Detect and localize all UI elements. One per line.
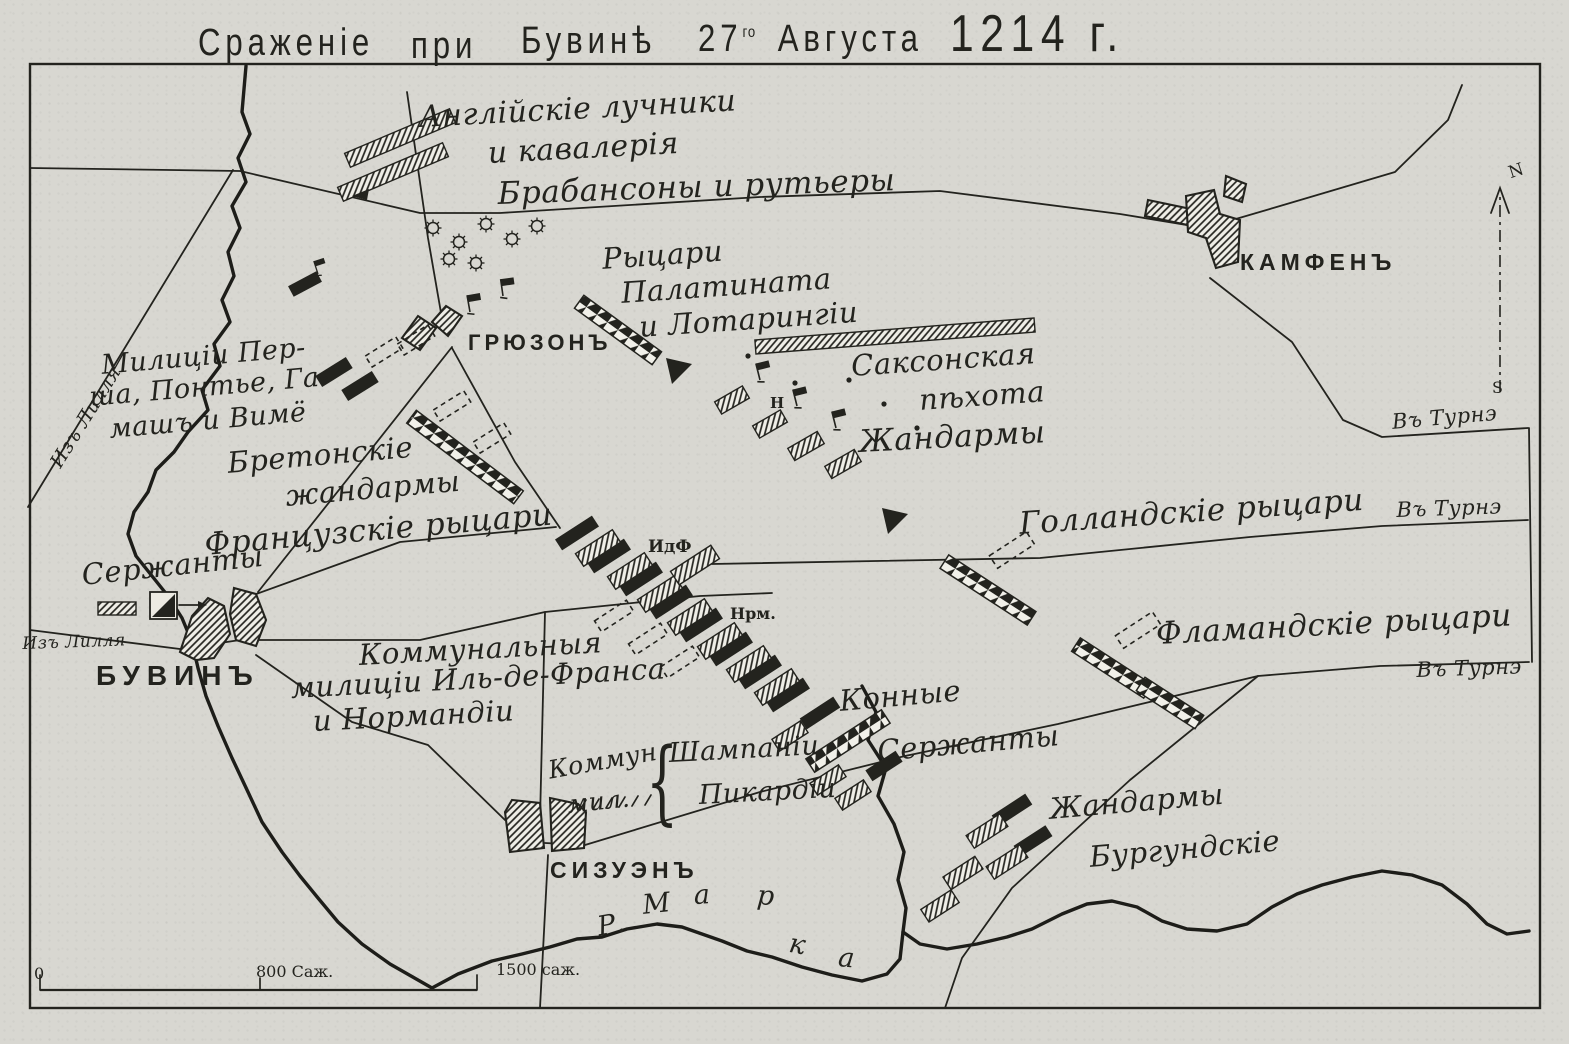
battle-map-of-bouvines: Сраженіе при Бувинѣ 27го Августа 1214 г.… — [0, 0, 1569, 1044]
label-from-lille-west: Изъ Лилля — [22, 630, 126, 654]
label-idf-abbr: ИдФ — [648, 537, 692, 557]
town-kamphin — [1145, 176, 1246, 268]
place-cysoing: СИЗУЭНЪ — [550, 857, 699, 884]
title-date-month: Августа — [778, 18, 923, 60]
place-kamphin: КАМФЕНЪ — [1240, 249, 1396, 276]
compass-south-label: S — [1492, 378, 1503, 397]
river-name-letter-a1: а — [693, 879, 711, 911]
place-gruzon: ГРЮЗОНЪ — [468, 330, 611, 356]
river-marque — [432, 871, 1529, 988]
dutch-knights-units — [940, 532, 1036, 625]
north-arrow — [1491, 188, 1509, 392]
title-word-at: при — [411, 25, 477, 68]
river-name-letter-a2: а — [837, 942, 857, 975]
river-name-letter-m: М — [641, 887, 672, 921]
label-to-tournai-2: Въ Турнэ — [1396, 494, 1502, 522]
sergeants-symbols — [98, 592, 207, 619]
title-date-suffix: го — [743, 24, 756, 41]
title-word-bouvines: Бувинѣ — [521, 20, 656, 63]
title-year: 1214 г. — [950, 4, 1125, 64]
title-word-battle: Сраженіе — [198, 22, 374, 65]
label-nrm-abbr: Нрм. — [730, 604, 776, 623]
label-to-tournai-3: Въ Турнэ — [1416, 654, 1522, 682]
brabancon-gears — [425, 216, 546, 272]
label-n-mark: Н — [770, 394, 784, 412]
gruzon-flags — [464, 277, 516, 315]
burgundian-gendarmes-units — [921, 794, 1053, 922]
town-gruzon — [402, 306, 462, 350]
town-bouvines — [180, 588, 266, 660]
scale-label-1500: 1500 саж. — [496, 960, 580, 979]
map-graphics — [0, 0, 1569, 1044]
title-date: 27го Августа — [698, 18, 923, 61]
river-name-letter-p: р — [756, 880, 776, 912]
scale-label-800: 800 Саж. — [256, 962, 333, 981]
title-date-day: 27 — [698, 18, 743, 60]
place-bouvines: БУВИНЪ — [96, 660, 260, 692]
river-name-letter-r: Р. — [595, 907, 628, 942]
scale-label-zero: 0 — [34, 964, 44, 983]
